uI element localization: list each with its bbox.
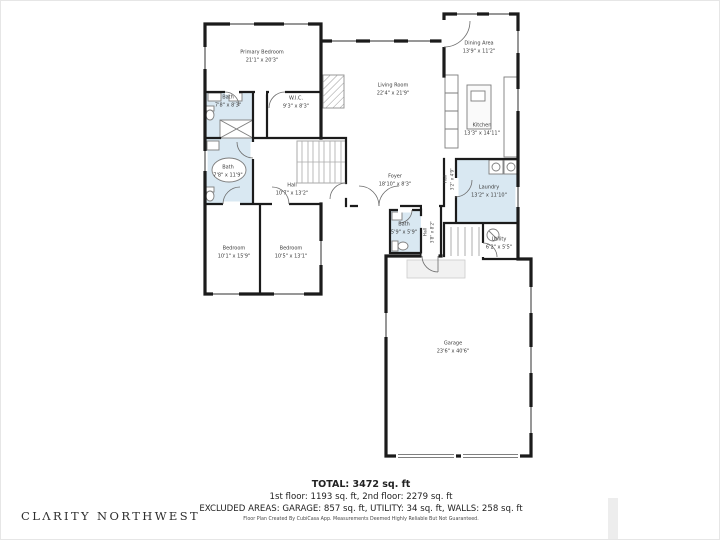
room-label-hall-kitchen: Hall3'2" x 4'9" xyxy=(443,168,456,191)
clarity-northwest-logo: CLΛRITY NORTHWEST xyxy=(21,509,200,523)
room-label-garage: Garage23'6" x 40'6" xyxy=(437,340,470,356)
total-area-text: TOTAL: 3472 sq. ft xyxy=(1,479,720,490)
room-label-bath-upper: Bath7'8" x 8'3" xyxy=(215,94,241,110)
room-label-wic: W.I.C.9'3" x 8'3" xyxy=(283,95,309,111)
room-label-foyer: Foyer18'10" x 8'3" xyxy=(379,173,412,189)
floor-plan xyxy=(1,1,720,540)
room-label-bedroom-2: Bedroom10'5" x 13'1" xyxy=(275,245,308,261)
room-label-kitchen: Kitchen13'3" x 14'11" xyxy=(464,122,500,138)
room-label-bath-half: Bath5'9" x 5'9" xyxy=(391,221,417,237)
room-label-hall-garage: Hall3'8" x 8'2" xyxy=(423,221,436,244)
room-label-utility: Utility6'2" x 5'5" xyxy=(486,236,512,252)
room-label-hall-main: Hall10'7" x 13'2" xyxy=(276,182,309,198)
room-label-dining-area: Dining Area13'9" x 11'2" xyxy=(463,40,496,56)
room-label-bedroom-1: Bedroom10'1" x 15'9" xyxy=(218,245,251,261)
room-label-bath-primary: Bath7'8" x 11'9" xyxy=(213,164,242,180)
walls xyxy=(205,14,531,456)
room-label-primary-bedroom: Primary Bedroom21'1" x 20'3" xyxy=(240,49,284,65)
floor-plan-screenshot: Primary Bedroom21'1" x 20'3" Bath7'8" x … xyxy=(0,0,720,540)
scan-artifact xyxy=(608,498,618,540)
room-label-laundry: Laundry13'2" x 11'10" xyxy=(471,184,507,200)
room-label-living-room: Living Room22'4" x 21'9" xyxy=(377,82,410,98)
